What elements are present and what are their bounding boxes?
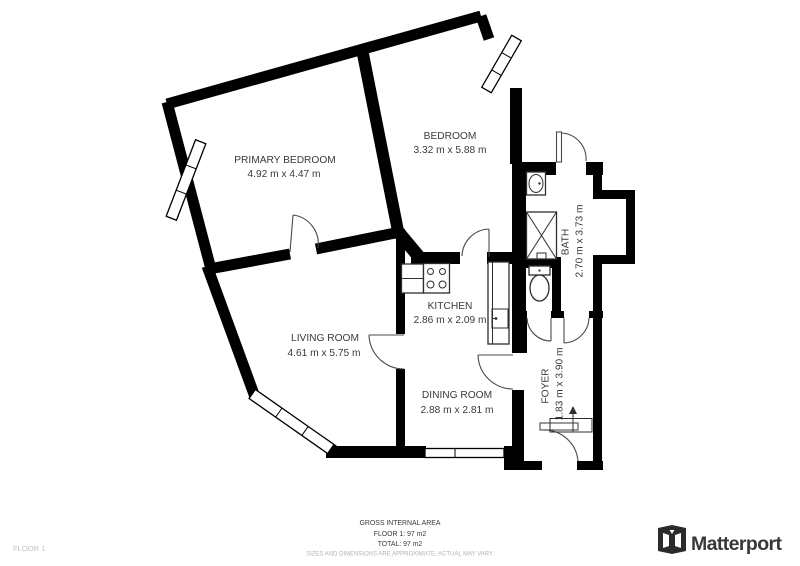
wall-foyer-left-lower (512, 390, 524, 466)
door-arc-icon-primary-bedroom (290, 215, 318, 252)
window-icon-bedroom-right (482, 35, 522, 92)
wall-foyer-bottom-right (577, 461, 603, 470)
wall-wc-niche-right (552, 261, 561, 311)
label-bath: BATH (561, 229, 572, 255)
door-arc-icon-wc (527, 318, 551, 341)
door-arc-icon-living-room (369, 335, 404, 369)
wall-apex-stub (481, 16, 489, 39)
door-arc-icon-dining-foyer (478, 355, 513, 389)
dims-bath: 2.70 m x 3.73 m (575, 204, 586, 277)
wall-bath-left (512, 163, 526, 311)
dims-bedroom: 3.32 m x 5.88 m (413, 145, 486, 156)
wall-right-lower (593, 255, 602, 470)
disclaimer-text: SIZES AND DIMENSIONS ARE APPROXIMATE, AC… (306, 552, 494, 558)
label-living-room: LIVING ROOM (291, 333, 359, 344)
floorplan-svg: PRIMARY BEDROOM 4.92 m x 4.47 m BEDROOM … (0, 0, 800, 566)
dims-kitchen: 2.86 m x 2.09 m (413, 315, 486, 326)
matterport-logo-icon (658, 525, 686, 554)
label-kitchen: KITCHEN (428, 301, 473, 312)
wall-left-lower (207, 266, 255, 397)
matterport-wordmark: Matterport (691, 533, 783, 555)
door-arc-icon-main-entry (540, 423, 578, 461)
window-icon-dining-bottom (425, 449, 504, 458)
dims-foyer: 1.83 m x 3.90 m (555, 347, 566, 420)
gross-internal-area-title: GROSS INTERNAL AREA (360, 520, 441, 527)
label-primary-bedroom: PRIMARY BEDROOM (234, 155, 336, 166)
door-arc-icon-bath-foyer (564, 318, 589, 343)
wall-primary-living-left (209, 254, 290, 269)
label-foyer: FOYER (541, 368, 552, 403)
floor-area-line: FLOOR 1: 97 m2 (374, 531, 427, 538)
kitchen-counter-right (488, 262, 509, 344)
wall-foyer-left-upper (512, 311, 527, 353)
wall-bedroom-right (510, 88, 522, 164)
dims-living-room: 4.61 m x 5.75 m (287, 348, 360, 359)
wall-bump-right (626, 190, 635, 264)
window-icon-living-diagonal (249, 389, 334, 453)
toilet-icon (529, 266, 550, 301)
floorplan-page: PRIMARY BEDROOM 4.92 m x 4.47 m BEDROOM … (0, 0, 800, 566)
label-bedroom: BEDROOM (424, 131, 477, 142)
sink-icon-bath (527, 172, 546, 195)
kitchen-counter-left (402, 264, 424, 293)
label-dining-room: DINING ROOM (422, 390, 492, 401)
door-arc-icon-bath-entry (557, 132, 587, 162)
dims-primary-bedroom: 4.92 m x 4.47 m (247, 169, 320, 180)
dims-dining-room: 2.88 m x 2.81 m (420, 405, 493, 416)
stove-icon (424, 264, 450, 294)
total-area-line: TOTAL: 97 m2 (378, 541, 423, 548)
wall-bottom (326, 446, 426, 458)
footer: GROSS INTERNAL AREA FLOOR 1: 97 m2 TOTAL… (13, 520, 494, 558)
door-arc-icon-bedroom-kitchen (462, 229, 489, 257)
wall-foyer-top-right (589, 311, 603, 318)
wall-living-right-lower (396, 369, 405, 455)
wall-top-edge (167, 16, 481, 104)
floor-label: FLOOR 1 (13, 544, 46, 553)
wall-primary-living-right (316, 232, 400, 249)
wall-kitchen-top-left (411, 252, 460, 264)
brand: Matterport (658, 525, 783, 555)
wall-bedroom-divider (362, 49, 398, 231)
wall-foyer-top-mid (551, 311, 564, 318)
shower-icon (527, 212, 557, 259)
